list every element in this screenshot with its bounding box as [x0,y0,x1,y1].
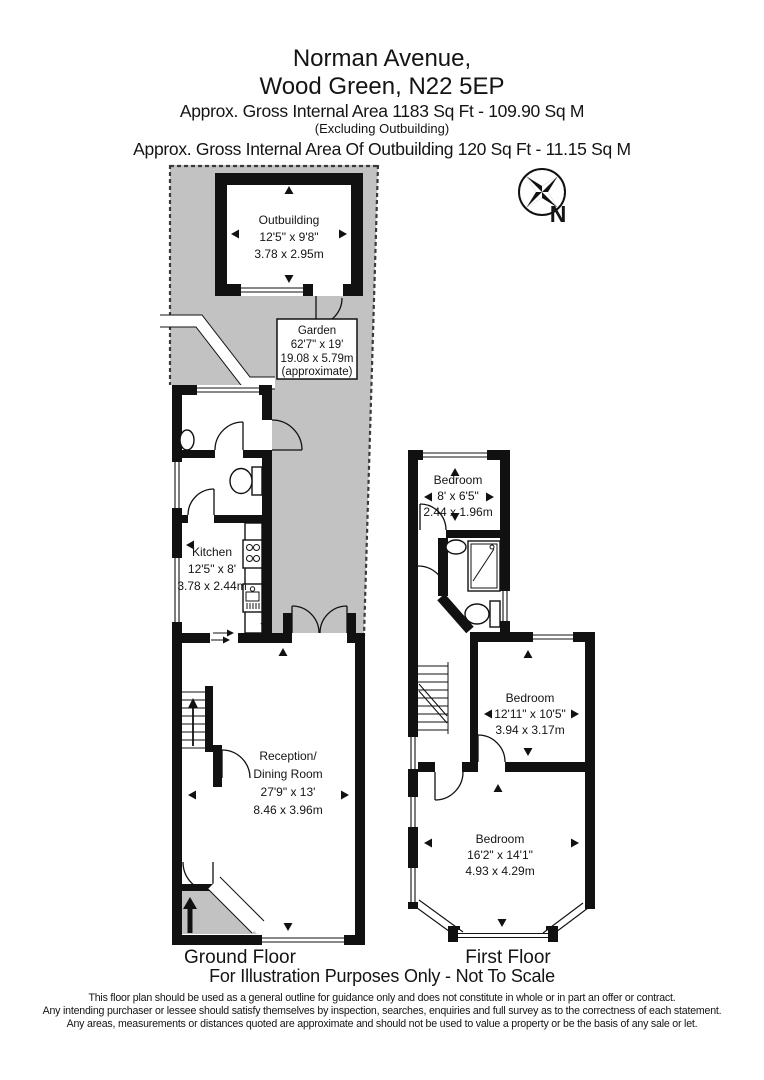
excluding-note: (Excluding Outbuilding) [315,121,449,136]
gross-area-line: Approx. Gross Internal Area 1183 Sq Ft -… [180,101,584,121]
bedroom-middle-label-metric: 3.94 x 3.17m [495,723,564,737]
first-staircase-icon [418,662,448,734]
compass-icon: N [519,169,566,227]
disclaimer-line-3: Any areas, measurements or distances quo… [67,1018,698,1030]
utility-sink-icon [180,430,194,450]
shower-icon [468,541,500,591]
bedroom-large-label-name: Bedroom [476,832,525,846]
bedroom-middle-label-imperial: 12'11" x 10'5" [494,707,566,721]
bedroom-small-label-metric: 2.44 x 1.96m [423,505,492,519]
illustration-note: For Illustration Purposes Only - Not To … [209,966,555,986]
compass-north-label: N [550,201,567,227]
outbuilding-window [241,284,303,296]
garden-label-note: (approximate) [282,366,353,378]
bedroom-small-label-imperial: 8' x 6'5" [437,489,479,503]
floor-captions: Ground Floor First Floor [184,947,551,968]
ground-floor-label: Ground Floor [184,947,297,968]
floorplan-page: N Norman Avenue, Wood Green, N22 5EP App… [0,0,764,1080]
kitchen-label-metric: 3.78 x 2.44m [177,579,246,593]
first-floor-label: First Floor [465,947,551,968]
bedroom-large-label-imperial: 16'2" x 14'1" [467,848,533,862]
kitchen-units [243,523,262,633]
step-arrows [211,630,234,644]
address-line-1: Norman Avenue, [293,45,471,72]
garden-label-imperial: 62'7" x 19' [291,339,344,351]
reception-label-imperial: 27'9" x 13' [261,785,316,799]
garden-label-metric: 19.08 x 5.79m [281,353,354,365]
reception-label-name2: Dining Room [253,767,322,781]
outbuilding-label-metric: 3.78 x 2.95m [254,247,323,261]
disclaimer-line-1: This floor plan should be used as a gene… [88,992,675,1004]
reception-label-name1: Reception/ [259,749,317,763]
bedroom-small-label-name: Bedroom [434,473,483,487]
ground-staircase-icon [182,692,205,748]
bedroom-middle-label-name: Bedroom [506,691,555,705]
address-line-2: Wood Green, N22 5EP [259,73,504,100]
bathroom-sink-icon [446,540,466,554]
outbuilding-label-imperial: 12'5" x 9'8" [259,230,318,244]
outbuilding-area-line: Approx. Gross Internal Area Of Outbuildi… [133,139,631,159]
reception-label-metric: 8.46 x 3.96m [253,803,322,817]
outbuilding-label-name: Outbuilding [259,213,320,227]
floorplan-canvas: N Norman Avenue, Wood Green, N22 5EP App… [0,0,764,1080]
footer-block: For Illustration Purposes Only - Not To … [43,966,722,1030]
kitchen-label-name: Kitchen [192,545,232,559]
disclaimer-line-2: Any intending purchaser or lessee should… [43,1005,722,1017]
hob-icon [243,540,262,568]
wc-toilet-icon [230,467,262,495]
kitchen-label-imperial: 12'5" x 8' [188,562,236,576]
title-block: Norman Avenue, Wood Green, N22 5EP Appro… [133,45,631,159]
bedroom-large-label-metric: 4.93 x 4.29m [465,864,534,878]
garden-label-name: Garden [298,325,336,337]
